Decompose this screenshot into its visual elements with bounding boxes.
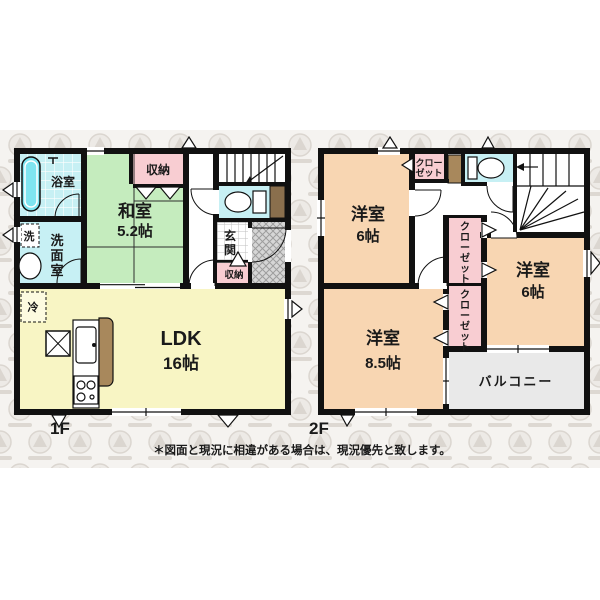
disclaimer-text: ＊図面と現況に相違がある場合は、現況優先と致します。	[153, 443, 451, 457]
toilet-tank-2f	[468, 157, 477, 179]
label-west6-size: 6帖	[356, 227, 379, 245]
kitchen-faucet-icon	[92, 343, 96, 347]
label-east6-name: 洋室	[516, 260, 550, 280]
toilet-tank-1f	[253, 191, 266, 213]
label-genkan: 玄関	[224, 228, 236, 257]
label-genkan-storage: 収納	[224, 269, 243, 281]
room-south85	[324, 289, 443, 409]
label-south85-size: 8.5帖	[365, 354, 401, 372]
label-east6-size: 6帖	[521, 283, 544, 301]
label-closet-mid: クローゼット	[460, 221, 470, 286]
label-washer: 洗	[24, 229, 35, 243]
label-1f: 1F	[50, 419, 70, 438]
label-west6-name: 洋室	[351, 204, 385, 224]
toilet-bowl-2f	[478, 158, 504, 178]
label-tatami-size: 5.2帖	[117, 222, 153, 240]
counter-2f	[448, 155, 463, 183]
label-balcony: バルコニー	[479, 374, 554, 389]
label-ldk-size: 16帖	[163, 353, 199, 373]
floor-1f	[3, 137, 302, 427]
label-fridge: 冷	[28, 300, 39, 314]
label-closet-top-2: ゼット	[415, 167, 442, 178]
label-ldk: LDK	[160, 328, 202, 350]
washbasin	[19, 253, 41, 279]
label-closet-low: クローゼット	[460, 289, 470, 354]
floorplan-canvas: 浴室 洗 洗面室 和室 5.2帖 収納 玄関 収納 LDK 16帖 冷 洋室 6…	[0, 0, 600, 600]
floorplan-page: { "meta": { "title_1f": "1F", "title_2f"…	[0, 0, 600, 600]
floor-2f	[317, 137, 600, 426]
label-tatami-name: 和室	[118, 201, 152, 221]
label-bath: 浴室	[51, 174, 75, 189]
label-south85-name: 洋室	[366, 328, 400, 348]
label-2f: 2F	[309, 419, 329, 438]
label-washroom: 洗面室	[50, 233, 63, 278]
toilet-bowl-1f	[225, 192, 251, 212]
label-closet-top-1: クロー	[415, 158, 442, 168]
label-storage-top: 収納	[146, 162, 170, 177]
kitchen-counter	[99, 318, 113, 386]
toilet-cabinet-1f	[270, 186, 285, 218]
